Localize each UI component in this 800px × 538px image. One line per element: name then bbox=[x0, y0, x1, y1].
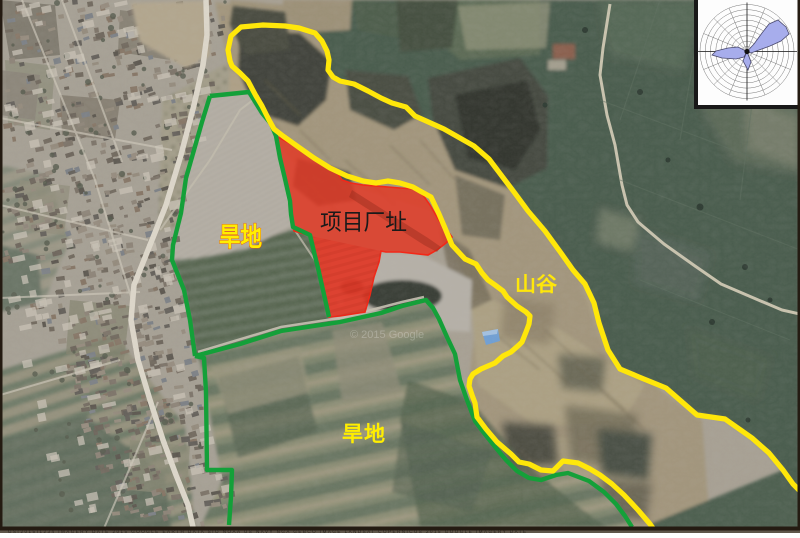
svg-text:旱地: 旱地 bbox=[219, 222, 262, 252]
svg-text:项目厂址: 项目厂址 bbox=[320, 210, 407, 235]
svg-text:旱地: 旱地 bbox=[342, 422, 386, 446]
svg-text:山谷: 山谷 bbox=[515, 273, 558, 296]
svg-text:GS(2015)1234 IMAGERY DATE 2015: GS(2015)1234 IMAGERY DATE 2015 GOOGLE EA… bbox=[8, 529, 528, 533]
